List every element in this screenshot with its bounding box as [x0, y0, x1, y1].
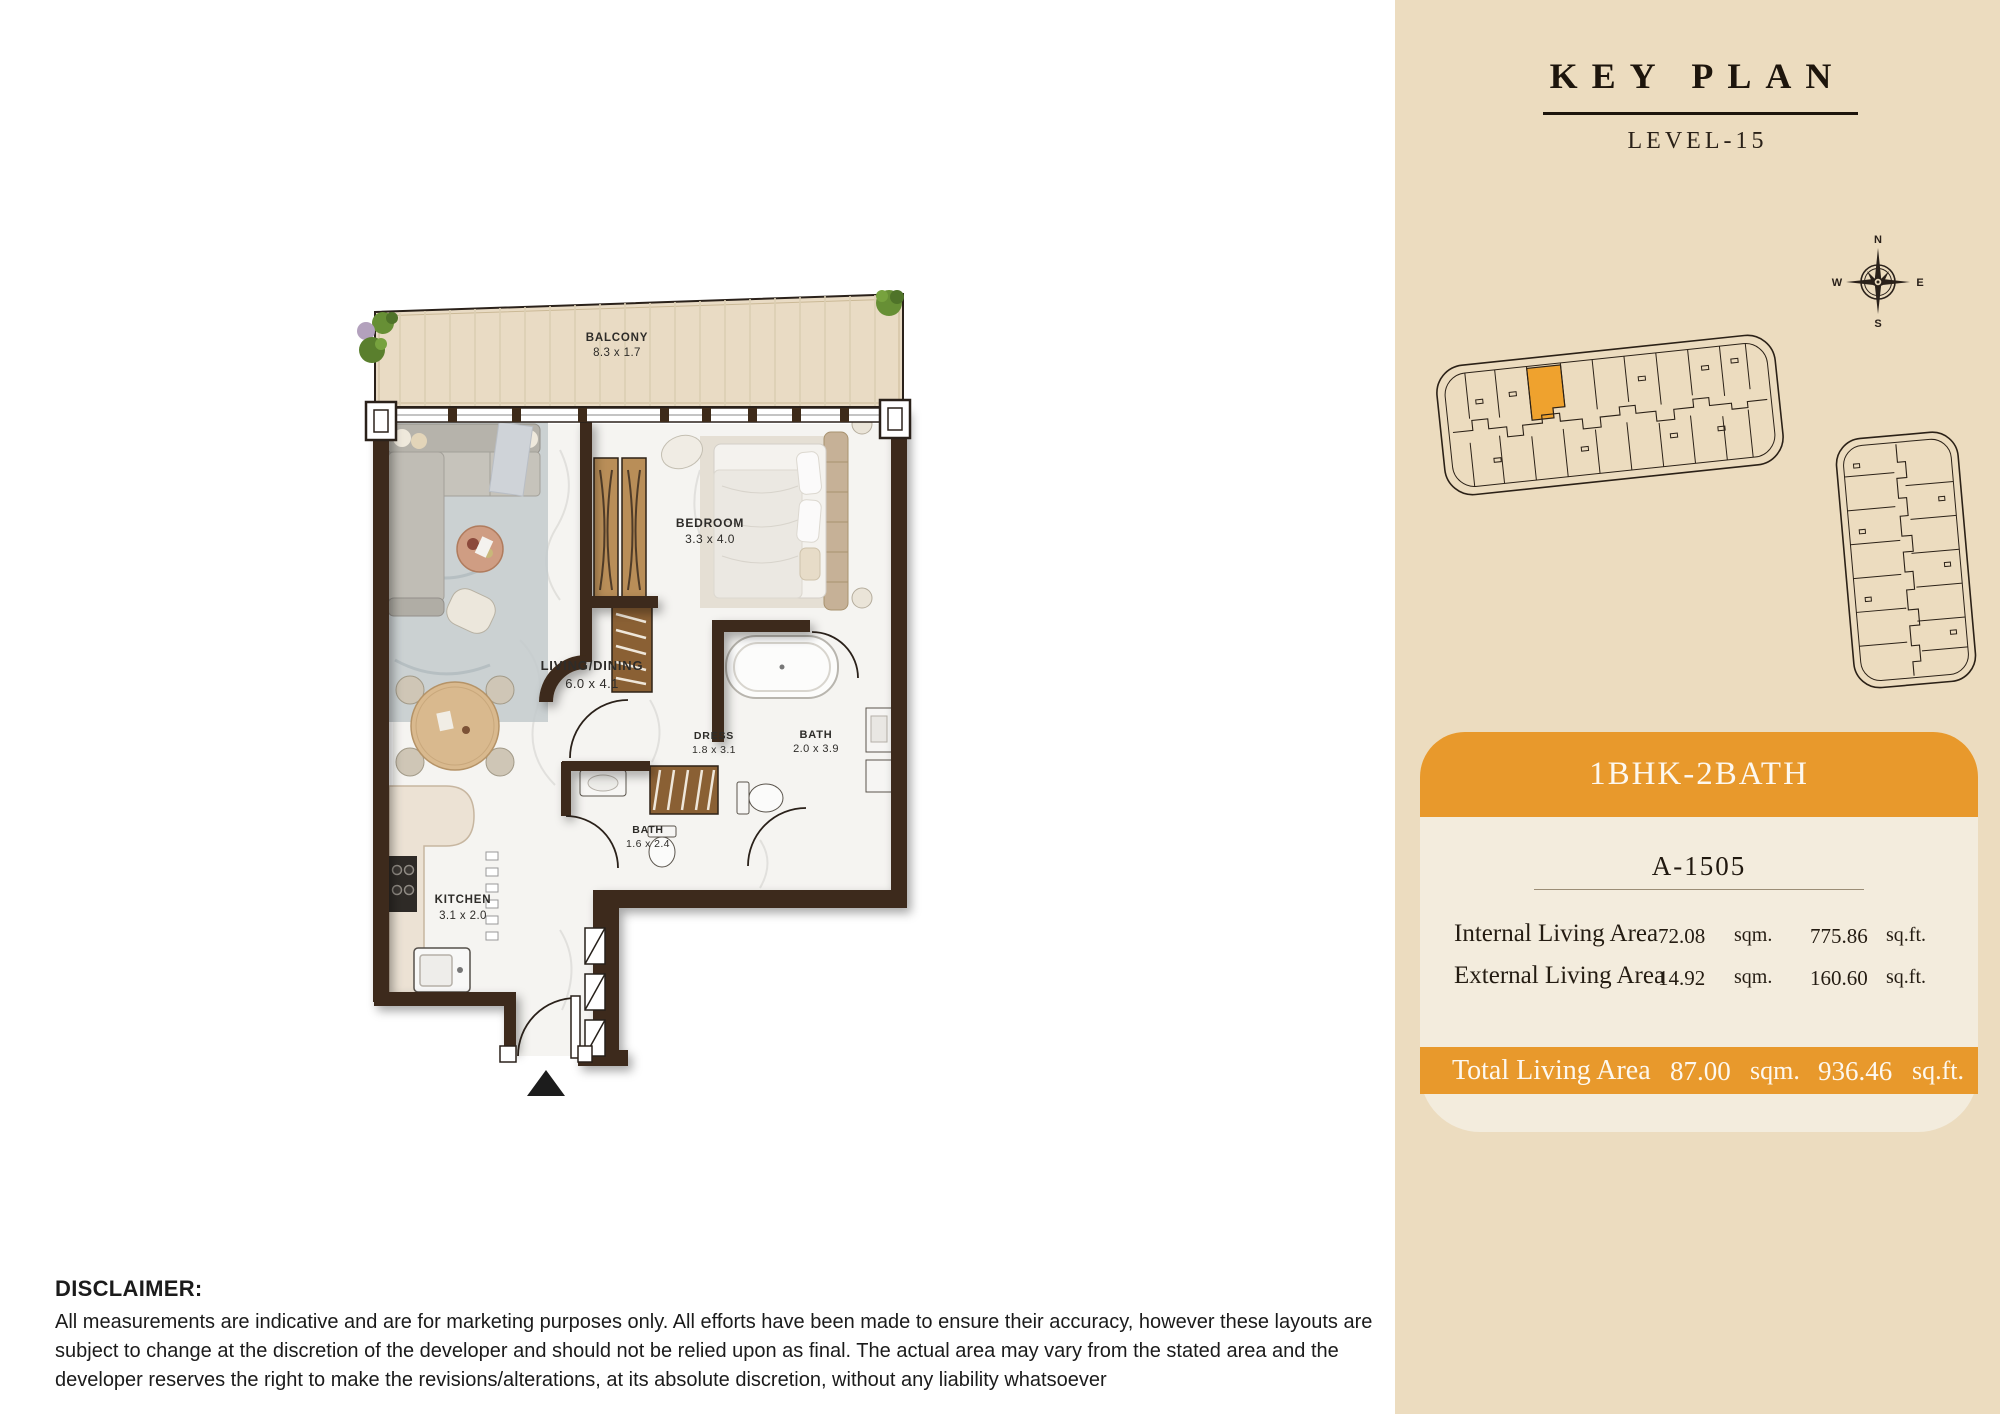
compass-w: W: [1832, 277, 1843, 289]
entrance-arrow-icon: [527, 1070, 565, 1096]
compass-e: E: [1916, 277, 1923, 289]
room-label-dress: DRESS: [694, 730, 734, 742]
unit-type-header: 1BHK-2BATH: [1420, 732, 1978, 817]
room-label-balcony: BALCONY: [586, 332, 648, 344]
unit-number-underline: [1534, 889, 1864, 890]
keyplan-building-1: [1420, 325, 1810, 515]
title-underline: [1543, 112, 1858, 115]
compass-n: N: [1874, 234, 1882, 246]
total-area-sqft-unit: sq.ft.: [1912, 1056, 1964, 1086]
room-dims-bedroom: 3.3 x 4.0: [685, 532, 735, 546]
room-dims-dress: 1.8 x 3.1: [692, 744, 736, 756]
kitchen-sink-icon: [414, 948, 470, 992]
disclaimer: DISCLAIMER: All measurements are indicat…: [55, 1276, 1375, 1395]
sink-icon: [580, 770, 626, 796]
external-area-sqm-unit: sqm.: [1734, 966, 1772, 989]
compass-icon: N S W E: [1828, 228, 1938, 338]
room-dims-kitchen: 3.1 x 2.0: [439, 910, 487, 922]
external-area-row: External Living Area 14.92 sqm. 160.60 s…: [1420, 962, 1978, 994]
internal-area-sqm-unit: sqm.: [1734, 924, 1772, 947]
page: BALCONY 8.3 x 1.7 LIVING/DINING 6.0 x 4.…: [0, 0, 2000, 1414]
internal-area-sqft: 775.86: [1810, 924, 1868, 949]
coffee-table-icon: [457, 526, 503, 572]
disclaimer-heading: DISCLAIMER:: [55, 1276, 1375, 1302]
room-label-bedroom: BEDROOM: [676, 516, 744, 530]
stove-icon: [389, 856, 417, 912]
total-area-sqft: 936.46: [1818, 1056, 1892, 1087]
room-dims-bath-main: 2.0 x 3.9: [793, 743, 839, 755]
internal-area-sqm: 72.08: [1658, 924, 1705, 949]
page-title: KEY PLAN: [1395, 55, 2000, 97]
floor-plan: BALCONY 8.3 x 1.7 LIVING/DINING 6.0 x 4.…: [350, 280, 940, 1110]
room-label-bath-main: BATH: [800, 729, 833, 741]
compass-s: S: [1874, 318, 1881, 330]
total-area-bar: Total Living Area 87.00 sqm. 936.46 sq.f…: [1420, 1047, 1978, 1094]
external-area-sqft-unit: sq.ft.: [1886, 966, 1926, 989]
unit-number: A-1505: [1420, 851, 1978, 882]
internal-area-label: Internal Living Area: [1454, 920, 1658, 948]
total-area-sqm: 87.00: [1670, 1056, 1731, 1087]
keyplan-building-2: [1815, 405, 2000, 725]
internal-area-sqft-unit: sq.ft.: [1886, 924, 1926, 947]
room-label-bath-guest: BATH: [632, 824, 664, 836]
unit-info-card: A-1505 Internal Living Area 72.08 sqm. 7…: [1420, 817, 1978, 1132]
external-area-sqft: 160.60: [1810, 966, 1868, 991]
shaft-boxes: [585, 928, 605, 1056]
room-dims-living: 6.0 x 4.1: [565, 676, 618, 691]
toilet-icon: [737, 782, 783, 814]
room-dims-balcony: 8.3 x 1.7: [593, 347, 641, 359]
internal-area-row: Internal Living Area 72.08 sqm. 775.86 s…: [1420, 920, 1978, 952]
external-area-sqm: 14.92: [1658, 966, 1705, 991]
room-label-kitchen: KITCHEN: [435, 894, 492, 906]
external-area-label: External Living Area: [1454, 962, 1665, 990]
dining-set-icon: [396, 676, 514, 776]
total-area-sqm-unit: sqm.: [1750, 1056, 1800, 1086]
level-label: LEVEL-15: [1395, 128, 2000, 155]
unit-type-label: 1BHK-2BATH: [1589, 756, 1809, 793]
total-area-label: Total Living Area: [1452, 1055, 1651, 1087]
room-label-living: LIVING/DINING: [541, 658, 644, 673]
highlighted-unit: [1527, 365, 1566, 420]
side-table-icon: [852, 588, 872, 608]
cabinet-icon: [866, 760, 892, 792]
disclaimer-body: All measurements are indicative and are …: [55, 1308, 1375, 1395]
room-dims-bath-guest: 1.6 x 2.4: [626, 838, 670, 850]
